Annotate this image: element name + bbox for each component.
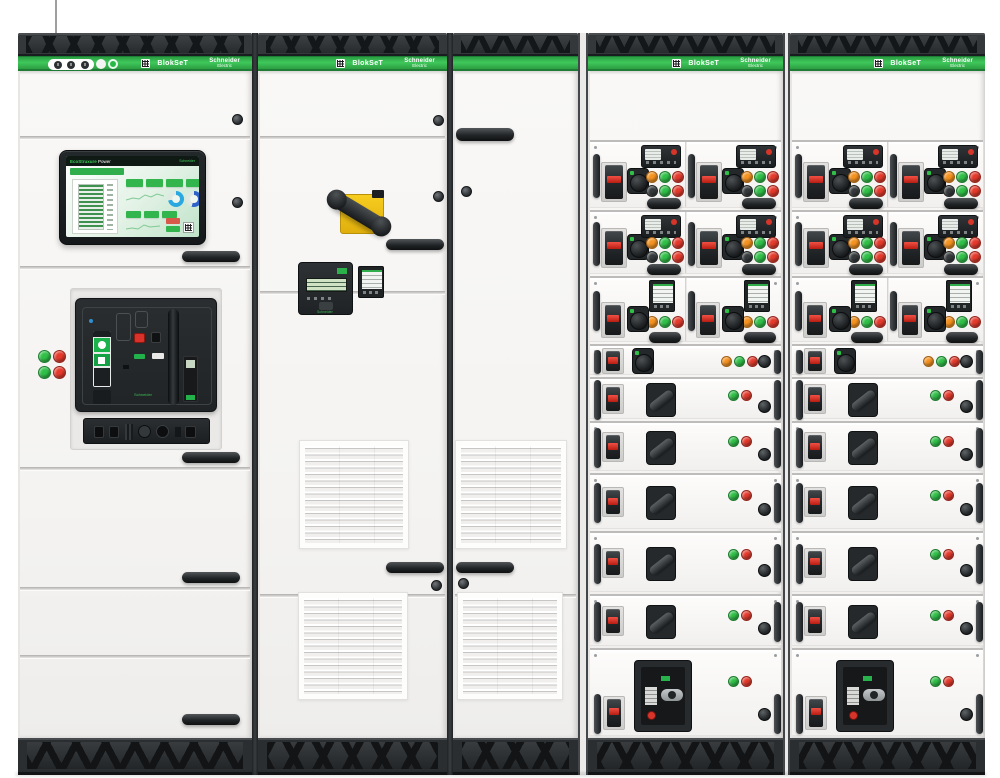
push-off-button[interactable] <box>134 333 145 343</box>
breaker-toggle[interactable] <box>607 699 621 727</box>
drawer-grip-bar[interactable] <box>594 350 601 374</box>
micrologic-control-unit[interactable] <box>183 356 198 402</box>
hmi-schneider-logo: Schneider <box>179 159 195 163</box>
qr-code-icon <box>672 59 681 68</box>
drawer-grip-bar[interactable] <box>594 428 601 468</box>
test-knob[interactable] <box>960 564 973 577</box>
drawer-grip-bar[interactable] <box>774 483 781 523</box>
green-pilot-light <box>734 356 745 367</box>
breaker-red-stripe <box>608 443 618 450</box>
cabinet-3-riser <box>453 33 578 775</box>
drawer-grip-bar[interactable] <box>688 291 695 331</box>
green-push-button[interactable] <box>754 237 766 249</box>
breaker-base <box>898 162 924 202</box>
breaker-red-stripe <box>607 242 621 249</box>
breaker-base <box>803 162 829 202</box>
switchboard-lineup: BlokSeT SchneiderElectric EcoStruxure Po… <box>0 0 1000 778</box>
red-push-button[interactable] <box>767 185 779 197</box>
rotary-switch[interactable] <box>632 348 654 374</box>
breaker-toggle[interactable] <box>902 165 920 199</box>
hmi-button[interactable] <box>146 179 163 187</box>
lock-icon[interactable] <box>67 61 75 69</box>
breaker-toggle[interactable] <box>808 351 822 371</box>
plinth <box>790 738 985 775</box>
orange-push-button[interactable] <box>848 171 860 183</box>
cabinet-1-incomer: BlokSeT SchneiderElectric EcoStruxure Po… <box>18 33 252 775</box>
door-locks[interactable] <box>48 59 94 70</box>
drawer-grip-bar[interactable] <box>796 544 803 584</box>
green-pilot-light <box>930 490 941 501</box>
motor-pair-drawer[interactable] <box>792 210 983 274</box>
plinth <box>18 738 252 775</box>
drawer-handle[interactable] <box>742 198 776 209</box>
hmi-screen[interactable]: EcoStruxure Power Schneider <box>66 156 199 237</box>
drawer-grip-bar[interactable] <box>795 154 802 198</box>
breaker-toggle[interactable] <box>605 305 621 335</box>
breaker-toggle[interactable] <box>606 351 620 371</box>
product-name: BlokSeT <box>157 60 188 67</box>
breaker-toggle[interactable] <box>807 165 825 199</box>
test-knob[interactable] <box>758 503 771 516</box>
motor-controller-display <box>736 145 776 168</box>
breaker-red-stripe <box>809 242 823 249</box>
green-push-button[interactable] <box>956 251 968 263</box>
breaker-toggle[interactable] <box>605 165 623 199</box>
qr-code-icon <box>874 59 883 68</box>
drawer-grip-bar[interactable] <box>976 428 983 468</box>
pistol-drawer[interactable] <box>792 473 983 529</box>
cabinet-gap <box>783 33 790 775</box>
dark-push-button[interactable] <box>646 185 658 197</box>
dark-push-button[interactable] <box>943 251 955 263</box>
brand-banner: BlokSeT SchneiderElectric <box>18 56 252 71</box>
green-push-button[interactable] <box>659 171 671 183</box>
drawer-grip-bar[interactable] <box>796 350 803 374</box>
test-knob[interactable] <box>960 622 973 635</box>
rotary-switch[interactable] <box>722 306 744 332</box>
breaker-toggle[interactable] <box>902 305 918 335</box>
breaker-base <box>696 302 720 338</box>
hmi-trend-chart <box>126 222 160 232</box>
drawer-grip-bar[interactable] <box>890 222 897 266</box>
breaker-toggle[interactable] <box>606 490 620 514</box>
pistol-grip-handle[interactable] <box>848 486 878 520</box>
drawer-grip-bar[interactable] <box>594 602 601 642</box>
green-push-button[interactable] <box>659 185 671 197</box>
breaker-toggle[interactable] <box>700 231 718 265</box>
drawer-grip-bar[interactable] <box>688 222 695 266</box>
green-push-button[interactable] <box>659 316 671 328</box>
pistol-drawer[interactable] <box>792 377 983 419</box>
schneider-logo: SchneiderElectric <box>740 58 771 69</box>
breaker-toggle[interactable] <box>606 435 620 459</box>
test-knob[interactable] <box>960 448 973 461</box>
pistol-grip-handle[interactable] <box>646 431 676 465</box>
orange-push-button[interactable] <box>943 171 955 183</box>
red-push-button[interactable] <box>767 316 779 328</box>
hmi-gauge-dial <box>186 191 199 207</box>
top-ventilation-grille <box>18 33 252 56</box>
orange-push-button[interactable] <box>646 237 658 249</box>
orange-push-button[interactable] <box>848 237 860 249</box>
meter-pair-drawer[interactable] <box>590 276 781 342</box>
racking-socket[interactable] <box>156 425 169 438</box>
drawer-handle[interactable] <box>849 264 883 275</box>
top-ventilation-grille <box>453 33 578 56</box>
hmi-alarm-tag <box>166 218 180 224</box>
door-handle[interactable] <box>456 562 514 573</box>
pistol-drawer[interactable] <box>590 473 781 529</box>
pistol-drawer[interactable] <box>590 421 781 471</box>
test-knob[interactable] <box>758 708 771 721</box>
drawer-grip-bar[interactable] <box>976 380 983 420</box>
green-push-button[interactable] <box>754 171 766 183</box>
red-push-button[interactable] <box>767 237 779 249</box>
indicator-drawer[interactable] <box>590 344 781 375</box>
green-pilot-light <box>728 390 739 401</box>
dark-push-button[interactable] <box>646 251 658 263</box>
mccb-circuit-breaker[interactable] <box>634 660 692 732</box>
green-pilot-light <box>930 390 941 401</box>
breaker-base <box>805 696 827 730</box>
meter-pair-drawer[interactable] <box>792 276 983 342</box>
breaker-base <box>804 348 826 374</box>
breaker-red-stripe <box>702 315 714 322</box>
drawer-handle[interactable] <box>647 198 681 209</box>
drawer-grip-bar[interactable] <box>890 291 897 331</box>
breaker-toggle[interactable] <box>606 551 620 575</box>
drawer-handle[interactable] <box>851 332 883 343</box>
drawer-handle[interactable] <box>946 332 978 343</box>
red-push-button[interactable] <box>969 316 981 328</box>
drawer-grip-bar[interactable] <box>796 380 803 420</box>
drawer-handle[interactable] <box>744 332 776 343</box>
motor-pair-drawer[interactable] <box>792 140 983 208</box>
green-push-button[interactable] <box>861 316 873 328</box>
breaker-toggle[interactable] <box>808 551 822 575</box>
red-pilot-light <box>943 676 954 687</box>
brand-banner <box>453 56 578 71</box>
breaker-base <box>803 228 829 268</box>
louver-vent <box>457 592 563 700</box>
breaker-toggle[interactable] <box>700 165 718 199</box>
pistol-grip-handle[interactable] <box>646 547 676 581</box>
green-pilot-light <box>936 356 947 367</box>
red-push-button[interactable] <box>672 237 684 249</box>
pistol-grip-handle[interactable] <box>848 431 878 465</box>
dark-push-button[interactable] <box>848 251 860 263</box>
pistol-grip-handle[interactable] <box>646 486 676 520</box>
breaker-red-stripe <box>702 176 716 183</box>
breaker-toggle[interactable] <box>809 699 823 727</box>
rotary-switch[interactable] <box>829 306 851 332</box>
breaker-toggle[interactable] <box>808 387 822 411</box>
door-knob[interactable] <box>461 186 472 197</box>
pistol-drawer[interactable] <box>792 421 983 471</box>
drawer-grip-bar[interactable] <box>796 483 803 523</box>
orange-pilot-light <box>923 356 934 367</box>
red-pilot-light <box>943 610 954 621</box>
test-knob[interactable] <box>758 448 771 461</box>
door-handle[interactable] <box>386 239 444 250</box>
breaker-toggle[interactable] <box>606 387 620 411</box>
breaker-logo: Schneider <box>134 392 152 397</box>
drawer-grip-bar[interactable] <box>976 602 983 642</box>
pistol-grip-handle[interactable] <box>848 547 878 581</box>
hmi-button[interactable] <box>126 179 143 187</box>
hmi-qr-code <box>183 222 194 233</box>
drawer-handle[interactable] <box>647 264 681 275</box>
breaker-base <box>601 162 627 202</box>
indicator-drawer[interactable] <box>792 344 983 375</box>
drawer-grip-bar[interactable] <box>890 154 897 198</box>
breaker-toggle[interactable] <box>807 231 825 265</box>
drawer-grip-bar[interactable] <box>593 154 600 198</box>
red-push-button[interactable] <box>969 251 981 263</box>
pistol-drawer[interactable] <box>792 531 983 592</box>
drawer-divider <box>685 142 687 207</box>
drawer-grip-bar[interactable] <box>796 428 803 468</box>
drawer-grip-bar[interactable] <box>688 154 695 198</box>
breaker-toggle[interactable] <box>700 305 716 335</box>
green-pilot-light <box>930 436 941 447</box>
breaker-base <box>804 384 826 414</box>
drawer-grip-bar[interactable] <box>594 483 601 523</box>
breaker-base <box>696 228 722 268</box>
green-pilot-light <box>930 610 941 621</box>
green-push-button[interactable] <box>754 316 766 328</box>
drawer-handle[interactable] <box>649 332 681 343</box>
breaker-toggle[interactable] <box>902 231 920 265</box>
green-push-button[interactable] <box>861 251 873 263</box>
breaker-toggle[interactable] <box>808 609 822 633</box>
dark-push-button[interactable] <box>741 251 753 263</box>
test-knob[interactable] <box>758 564 771 577</box>
drawer-grip-bar[interactable] <box>774 544 781 584</box>
push-on-button[interactable] <box>151 332 161 343</box>
drawer-grip-bar[interactable] <box>594 694 601 734</box>
drawer-grip-bar[interactable] <box>593 222 600 266</box>
test-knob[interactable] <box>758 355 771 368</box>
yellow-rotary-switch[interactable] <box>322 186 398 244</box>
red-push-button[interactable] <box>969 185 981 197</box>
red-pilot-light <box>741 390 752 401</box>
top-ventilation-grille <box>258 33 447 56</box>
racking-dial[interactable] <box>138 425 151 438</box>
hmi-title: EcoStruxure Power <box>70 159 111 164</box>
drawer-grip-bar[interactable] <box>593 291 600 331</box>
orange-push-button[interactable] <box>646 171 658 183</box>
red-push-button[interactable] <box>874 171 886 183</box>
lock-icon[interactable] <box>54 61 62 69</box>
motor-pair-drawer[interactable] <box>590 210 781 274</box>
drawer-grip-bar[interactable] <box>594 544 601 584</box>
power-meter <box>649 280 675 312</box>
drawer-handle[interactable] <box>944 198 978 209</box>
breaker-toggle[interactable] <box>808 490 822 514</box>
red-push-button[interactable] <box>767 171 779 183</box>
breaker-red-stripe <box>810 395 820 402</box>
pistol-drawer[interactable] <box>590 377 781 419</box>
drawer-grip-bar[interactable] <box>774 350 781 374</box>
green-push-button[interactable] <box>956 185 968 197</box>
orange-push-button[interactable] <box>943 237 955 249</box>
mccb-trip-button[interactable] <box>647 711 656 720</box>
hmi-button[interactable] <box>144 211 159 218</box>
drawer-grip-bar[interactable] <box>976 483 983 523</box>
test-knob[interactable] <box>758 400 771 413</box>
dark-push-button[interactable] <box>741 185 753 197</box>
dark-push-button[interactable] <box>848 185 860 197</box>
red-push-button[interactable] <box>672 171 684 183</box>
green-push-button[interactable] <box>861 237 873 249</box>
cabinet-gap <box>578 33 588 775</box>
lock-icon[interactable] <box>81 61 89 69</box>
pistol-grip-handle[interactable] <box>646 383 676 417</box>
pistol-drawer[interactable] <box>590 594 781 646</box>
door-handle[interactable] <box>182 714 240 725</box>
door-knob[interactable] <box>232 197 243 208</box>
mccb-rotary-handle[interactable] <box>863 689 885 701</box>
red-push-button[interactable] <box>672 251 684 263</box>
drawer-grip-bar[interactable] <box>796 602 803 642</box>
relay-dpad[interactable] <box>319 302 333 310</box>
brand-banner: BlokSeT SchneiderElectric <box>790 56 985 71</box>
green-push-button[interactable] <box>956 171 968 183</box>
green-push-button[interactable] <box>754 185 766 197</box>
motor-pair-drawer[interactable] <box>590 140 781 208</box>
green-push-button[interactable] <box>956 237 968 249</box>
protection-relay[interactable]: Schneider <box>298 262 353 315</box>
power-meter[interactable] <box>358 266 384 298</box>
drawer-grip-bar[interactable] <box>795 291 802 331</box>
breaker-toggle[interactable] <box>808 435 822 459</box>
drawer-grip-bar[interactable] <box>796 694 803 734</box>
mccb-circuit-breaker[interactable] <box>836 660 894 732</box>
plinth <box>258 738 447 775</box>
drawer-column-5: BlokSeT SchneiderElectric <box>790 33 985 775</box>
rotary-switch[interactable] <box>834 348 856 374</box>
red-push-button[interactable] <box>672 185 684 197</box>
drawer-handle[interactable] <box>849 198 883 209</box>
red-push-button[interactable] <box>874 185 886 197</box>
dark-push-button[interactable] <box>943 185 955 197</box>
mccb-trip-button[interactable] <box>849 711 858 720</box>
drawer-grip-bar[interactable] <box>795 222 802 266</box>
green-push-button[interactable] <box>861 185 873 197</box>
orange-push-button[interactable] <box>741 171 753 183</box>
test-knob[interactable] <box>960 708 973 721</box>
breaker-toggle[interactable] <box>606 609 620 633</box>
pistol-drawer[interactable] <box>590 531 781 592</box>
breaker-base <box>602 384 624 414</box>
pistol-grip-handle[interactable] <box>848 383 878 417</box>
drawer-grip-bar[interactable] <box>774 694 781 734</box>
power-meter <box>744 280 770 312</box>
drawer-divider <box>887 142 889 207</box>
drawer-grip-bar[interactable] <box>976 544 983 584</box>
mccb-drawer[interactable] <box>590 648 781 736</box>
hmi-touchscreen[interactable]: EcoStruxure Power Schneider <box>59 150 206 245</box>
door-knob[interactable] <box>433 191 444 202</box>
drawer-grip-bar[interactable] <box>774 602 781 642</box>
green-push-button[interactable] <box>754 251 766 263</box>
breaker-red-stripe <box>810 357 820 364</box>
mccb-drawer[interactable] <box>792 648 983 736</box>
door-handle[interactable] <box>456 128 514 141</box>
door-handle[interactable] <box>182 572 240 583</box>
breaker-keypad[interactable] <box>93 390 111 404</box>
breaker-base <box>602 548 624 578</box>
pistol-drawer[interactable] <box>792 594 983 646</box>
green-push-button[interactable] <box>659 237 671 249</box>
louver-vent <box>455 440 567 549</box>
hmi-button[interactable] <box>126 211 141 218</box>
green-push-button[interactable] <box>659 251 671 263</box>
mccb-rotary-handle[interactable] <box>661 689 683 701</box>
test-knob[interactable] <box>960 400 973 413</box>
drawer-grip-bar[interactable] <box>774 380 781 420</box>
green-pilot-light <box>930 549 941 560</box>
orange-push-button[interactable] <box>741 237 753 249</box>
hmi-button[interactable] <box>186 179 199 187</box>
door-knob[interactable] <box>458 578 469 589</box>
breaker-red-stripe <box>607 176 621 183</box>
drawer-grip-bar[interactable] <box>774 428 781 468</box>
red-push-button[interactable] <box>874 237 886 249</box>
pistol-grip-handle[interactable] <box>848 605 878 639</box>
green-push-button[interactable] <box>861 171 873 183</box>
test-knob[interactable] <box>758 622 771 635</box>
red-push-button[interactable] <box>874 316 886 328</box>
breaker-toggle[interactable] <box>807 305 823 335</box>
hmi-button[interactable] <box>162 211 177 218</box>
red-push-button[interactable] <box>767 251 779 263</box>
red-push-button[interactable] <box>969 237 981 249</box>
red-push-button[interactable] <box>874 251 886 263</box>
drawer-divider <box>887 278 889 341</box>
cabinet-2-coupling: BlokSeT SchneiderElectric Schneider <box>258 33 447 775</box>
red-push-button[interactable] <box>969 171 981 183</box>
rotary-switch[interactable] <box>627 306 649 332</box>
red-push-button[interactable] <box>672 316 684 328</box>
hmi-status-tag <box>166 226 180 232</box>
breaker-red-stripe <box>904 176 918 183</box>
drawer-grip-bar[interactable] <box>594 380 601 420</box>
drawer-handle[interactable] <box>944 264 978 275</box>
hmi-button[interactable] <box>166 179 183 187</box>
breaker-toggle[interactable] <box>605 231 623 265</box>
test-knob[interactable] <box>960 503 973 516</box>
drawer-handle[interactable] <box>742 264 776 275</box>
door-knob[interactable] <box>433 115 444 126</box>
test-knob[interactable] <box>960 355 973 368</box>
drawer-grip-bar[interactable] <box>976 350 983 374</box>
door-knob[interactable] <box>232 114 243 125</box>
top-ventilation-grille <box>790 33 985 56</box>
schneider-logo: SchneiderElectric <box>942 58 973 69</box>
pistol-grip-handle[interactable] <box>646 605 676 639</box>
breaker-status-card <box>93 331 111 387</box>
green-push-button[interactable] <box>956 316 968 328</box>
rotary-switch[interactable] <box>924 306 946 332</box>
door-handle[interactable] <box>386 562 444 573</box>
door-knob[interactable] <box>431 580 442 591</box>
door-handle[interactable] <box>182 251 240 262</box>
door-handle[interactable] <box>182 452 240 463</box>
racking-handle-slot[interactable] <box>168 309 179 405</box>
drawer-grip-bar[interactable] <box>976 694 983 734</box>
